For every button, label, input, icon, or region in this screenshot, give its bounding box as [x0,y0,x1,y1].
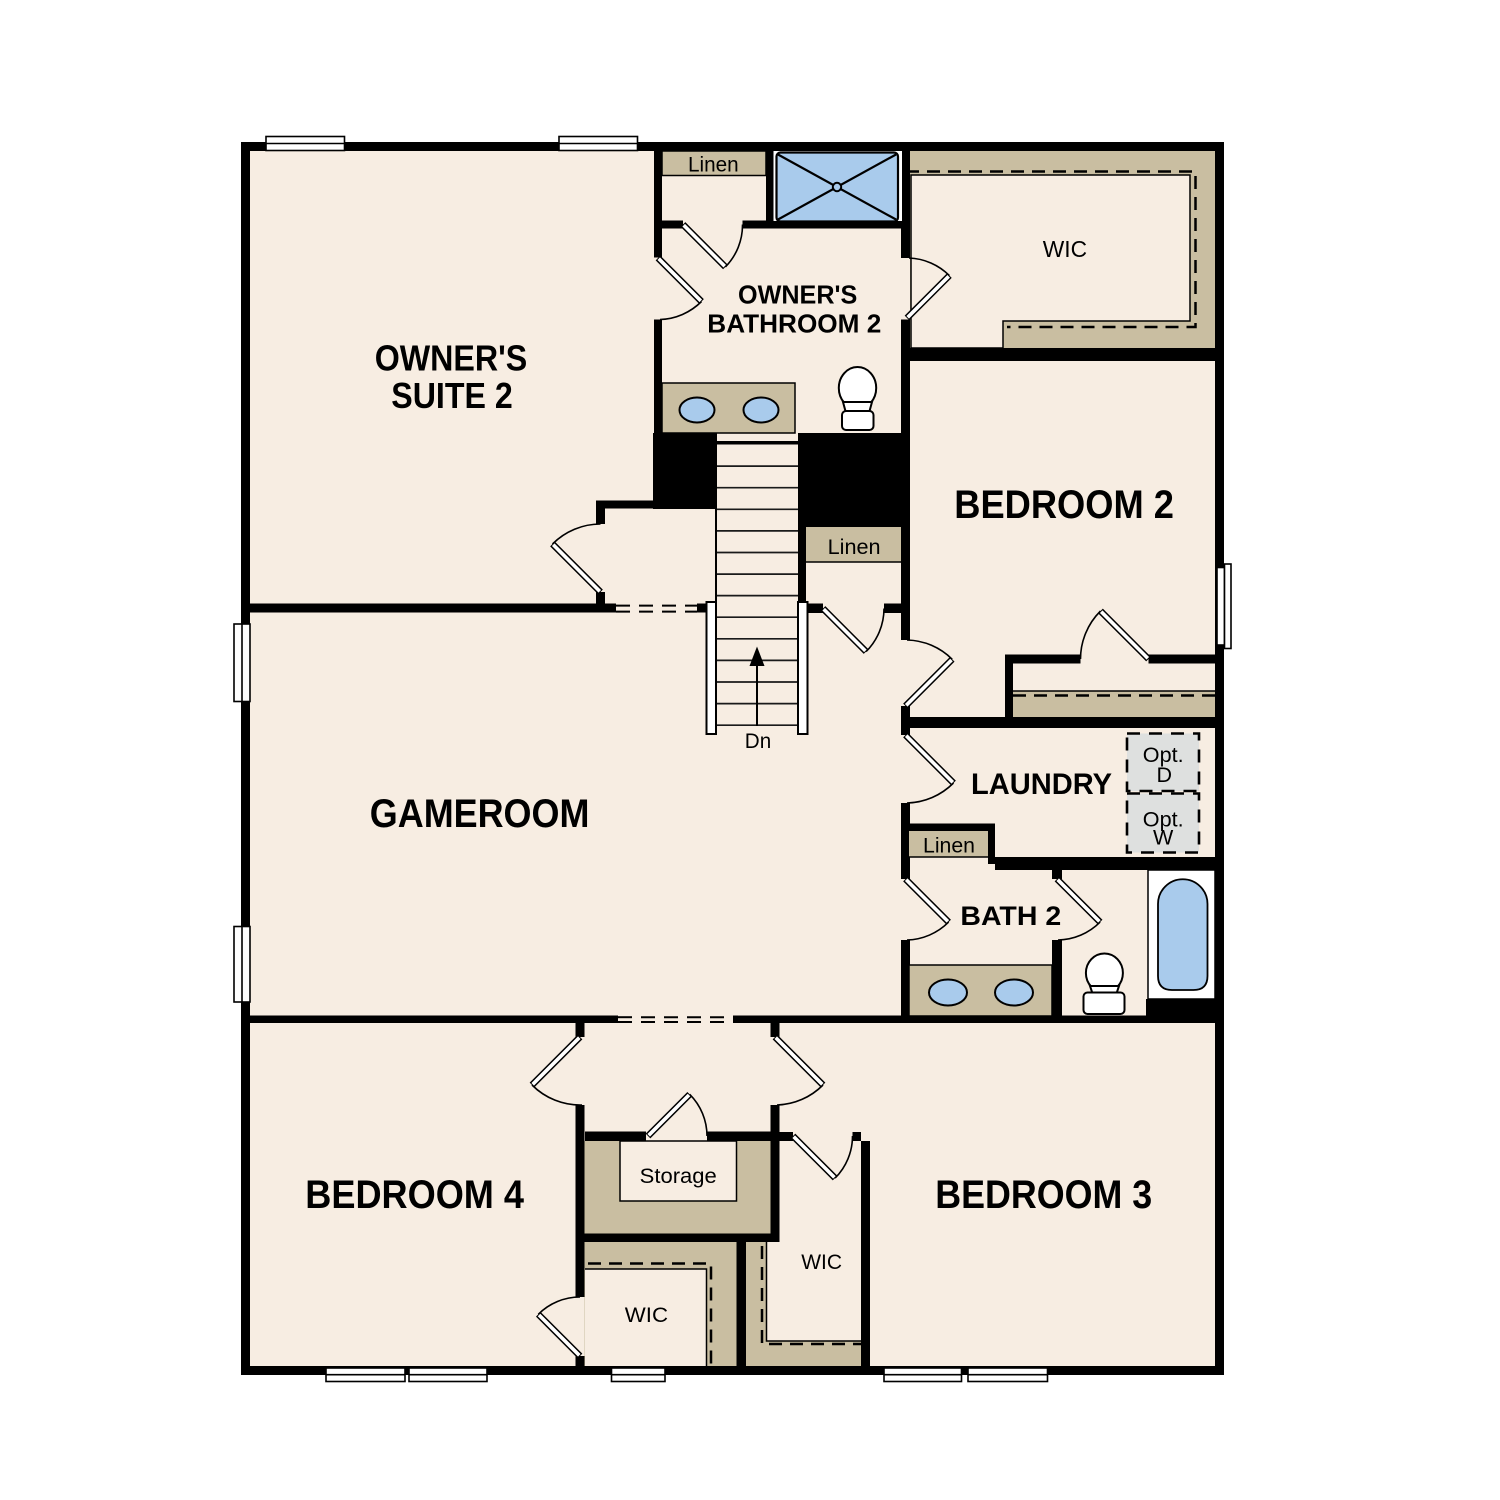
svg-text:Linen: Linen [688,153,739,177]
svg-text:GAMEROOM: GAMEROOM [370,792,590,836]
svg-text:BEDROOM 3: BEDROOM 3 [935,1173,1152,1217]
svg-text:BATHROOM 2: BATHROOM 2 [707,309,881,339]
svg-text:Linen: Linen [923,834,975,858]
svg-text:OWNER'S: OWNER'S [375,338,528,379]
svg-text:Dn: Dn [745,729,771,753]
svg-text:SUITE 2: SUITE 2 [391,375,512,416]
svg-text:WIC: WIC [625,1303,668,1327]
svg-text:BEDROOM 2: BEDROOM 2 [954,483,1174,527]
svg-text:WIC: WIC [801,1250,842,1274]
svg-text:BEDROOM 4: BEDROOM 4 [305,1173,524,1217]
svg-text:D: D [1157,763,1173,787]
svg-text:Linen: Linen [828,535,881,559]
svg-text:W: W [1153,826,1174,850]
svg-text:Storage: Storage [640,1164,717,1188]
svg-text:OWNER'S: OWNER'S [738,280,857,310]
svg-text:LAUNDRY: LAUNDRY [971,768,1112,801]
svg-text:BATH 2: BATH 2 [960,901,1061,931]
svg-text:WIC: WIC [1043,236,1087,262]
